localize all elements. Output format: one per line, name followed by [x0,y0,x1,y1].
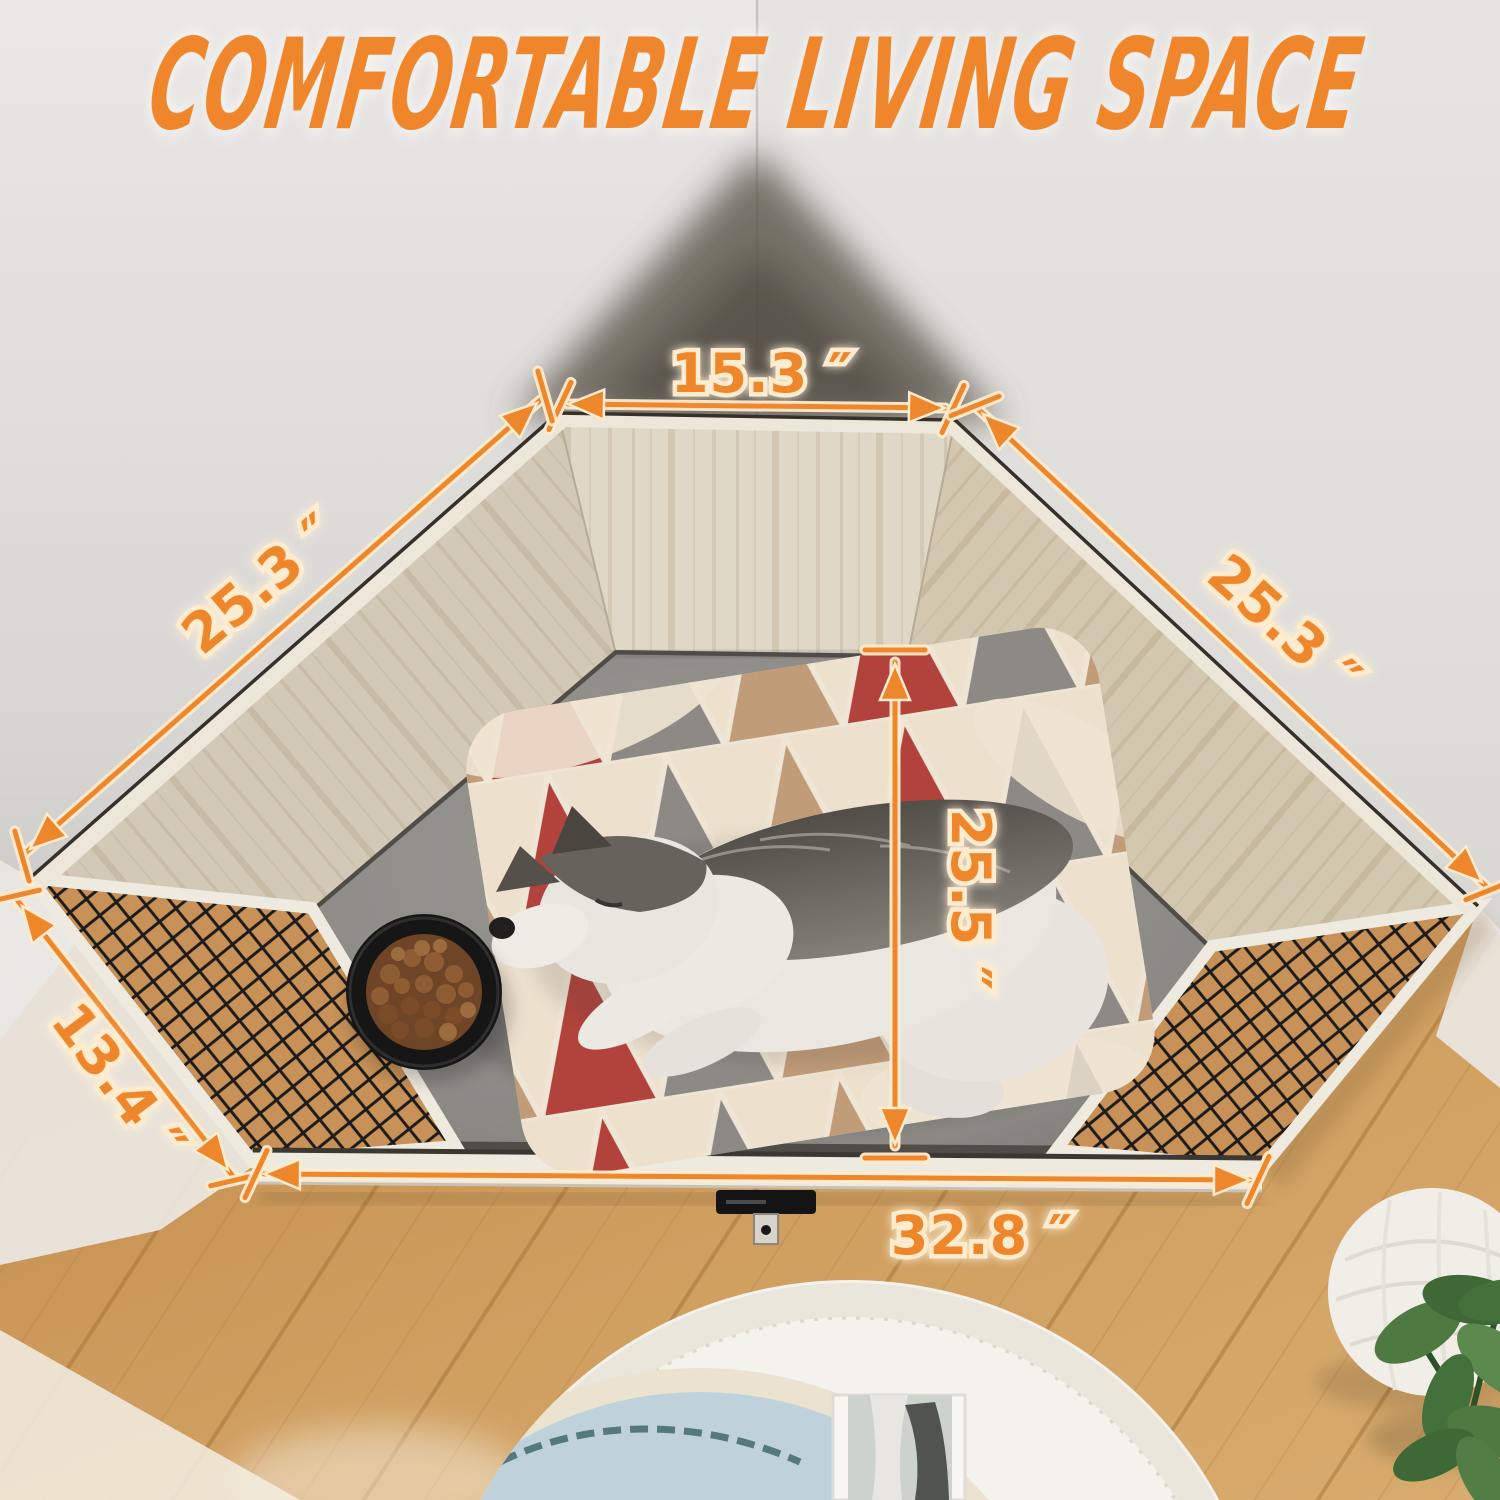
scene-svg: 15.3 ″ 25.3 ″ 25.3 ″ 25.5 ″ 13.4 ″ [0,0,1500,1500]
dog-nose [489,917,515,939]
dim-back-width-label: 15.3 ″ [671,342,853,405]
pen-back-wall [558,413,955,654]
dim-front-width-label: 32.8 ″ [891,1204,1073,1267]
dim-interior-depth-label: 25.5 ″ [939,809,1002,991]
product-dimension-image: 15.3 ″ 25.3 ″ 25.3 ″ 25.5 ″ 13.4 ″ [0,0,1500,1500]
page-title: COMFORTABLE LIVING SPACE [141,14,1372,159]
photo-block [833,1395,965,1500]
